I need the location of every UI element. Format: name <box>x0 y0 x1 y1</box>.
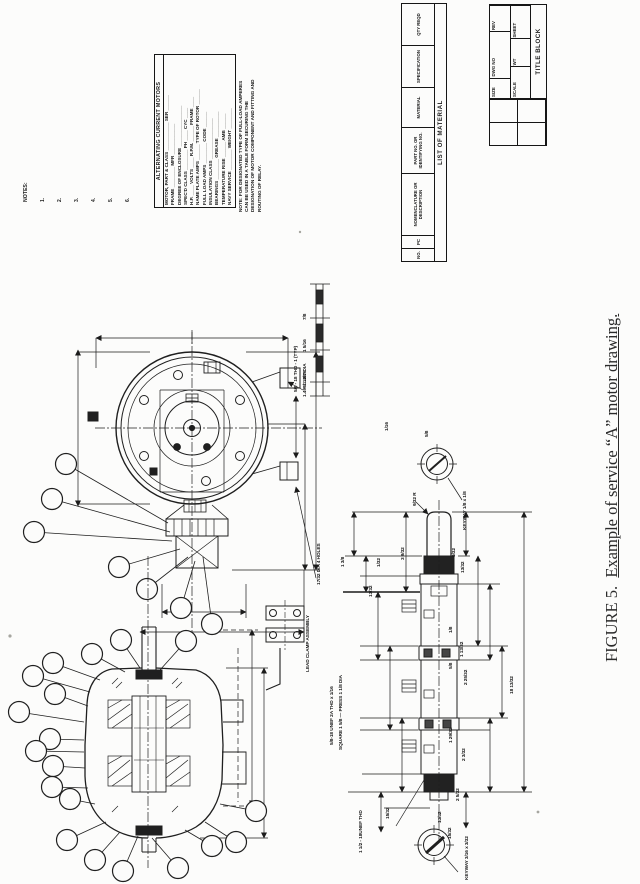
dimension-label: 15/32 <box>386 807 391 819</box>
dimension-label: 1/16 <box>385 422 390 431</box>
dimension-label: 15/32 <box>448 827 453 839</box>
side-note: NOTE: FOR DESIGNATED TYPE OF FULL-LOAD A… <box>238 52 264 212</box>
dimension-label: 13/32 <box>461 561 466 573</box>
scanned-drawing-page: FIGURE 5. Example of service “A” motor d… <box>0 0 640 884</box>
lom-column-header: SPECIFICATION <box>402 45 434 87</box>
dimension-label: 5/8 <box>449 663 454 669</box>
mini-strip-table <box>310 284 330 396</box>
note-item: 2. <box>52 168 69 202</box>
dimension-label: 2 3/32 <box>462 748 467 761</box>
dimension-label: 2 5/32 <box>456 788 461 801</box>
note-item: 6. <box>120 168 137 202</box>
lead-clamp-detail <box>266 600 304 690</box>
note-item: 5. <box>103 168 120 202</box>
title-block-cell: SIZE <box>490 78 511 98</box>
dimension-label: 2 25/32 <box>464 670 469 685</box>
note-item: 3. <box>69 168 86 202</box>
motor-data-table: ALTERNATING CURRENT MOTORS MOTOR, PART &… <box>154 54 236 208</box>
title-block: SIZE DWG NO REV SCALE WT SHEET TITLE BLO… <box>489 4 547 146</box>
scan-specks <box>8 231 539 814</box>
notes-title: NOTES: <box>18 168 35 202</box>
thread-left-label: 5/8-18 UNEF 2A THD x 1/16 <box>330 686 335 745</box>
dimension-label: 1/8 <box>449 627 454 633</box>
lom-column-header: NO. <box>402 248 434 261</box>
dimension-label: 1 3/8 <box>341 557 346 567</box>
title-block-cell: SCALE <box>511 66 532 98</box>
dimension-label: 1 13/32 <box>460 642 465 657</box>
dimension-label: 1 29/32 <box>449 728 454 743</box>
title-block-cell: REV <box>490 5 511 31</box>
title-block-cell: SHEET <box>511 5 532 38</box>
dimension-label: 1/32 <box>377 558 382 567</box>
title-block-title: TITLE BLOCK <box>531 5 546 98</box>
dimension-label: 9/32 R <box>413 492 418 506</box>
motor-table-row: NAVY SERVICE ________ WEIGHT ________ <box>227 55 233 207</box>
thread-bottom-label: 1 1/2 - 18UNEF THD <box>359 810 364 853</box>
lom-column-header: PC <box>402 235 434 248</box>
figure-caption-prefix: FIGURE 5. <box>602 586 621 662</box>
mounting-holes-label: 17/32 DIA 4 HOLES <box>317 543 322 585</box>
lom-column-header: PART NO. OR IDENTIFYING NO. <box>402 127 434 173</box>
list-of-material: NO. PC NOMENCLATURE OR DESCRIPTION PART … <box>401 3 447 262</box>
note-item: 1. <box>35 168 52 202</box>
lom-column-header: NOMENCLATURE OR DESCRIPTION <box>402 173 434 235</box>
shaft-dia-label: 1.499/1.497 DIA <box>303 364 308 397</box>
keyway-top-label: KEYWAY 1/8 x 1/8 <box>463 491 468 530</box>
figure-caption-text: Example of service “A” motor drawing. <box>602 314 621 578</box>
cross-section-balloons <box>9 630 267 882</box>
mini-table-value: 7/8 <box>303 314 308 320</box>
mini-table-value: 1 5/16 <box>303 339 308 352</box>
dimension-label: 13/32 <box>438 811 443 823</box>
title-block-grid <box>490 98 546 145</box>
note-item: 4. <box>86 168 103 202</box>
mini-table-label: 5/8 - 18 THD - 1 (TYP) <box>294 346 299 392</box>
end-view-dimensions <box>78 332 320 636</box>
dimension-label: 9/32 <box>452 548 457 557</box>
dimension-label: 13/32 <box>369 585 374 597</box>
lom-column-header: QTY REQD <box>402 4 434 45</box>
dimension-label: 5/8 <box>425 431 430 437</box>
dimension-label: 3 9/32 <box>401 547 406 560</box>
lead-clamp-label: LEAD CLAMP ASSEMBLY <box>306 615 311 672</box>
title-block-cell: DWG NO <box>490 31 511 78</box>
dimension-label: 18 13/32 <box>510 676 515 694</box>
figure-caption: FIGURE 5. Example of service “A” motor d… <box>602 250 630 662</box>
end-view <box>88 330 322 650</box>
end-view-balloons <box>24 454 223 635</box>
notes-list: NOTES: 1. 2. 3. 4. 5. 6. <box>18 168 140 202</box>
thread-left-label: SQUARE 1 5/8 — PRESS 1 1/8 DIA <box>339 675 344 750</box>
motor-table-title: ALTERNATING CURRENT MOTORS <box>155 55 164 207</box>
side-note-line: ROUTING OF RELAY. <box>257 52 263 212</box>
title-block-cell: WT <box>511 39 532 67</box>
lom-title: LIST OF MATERIAL <box>434 4 447 261</box>
keyway-bottom-label: KEYWAY 3/16 x 3/32 <box>465 836 470 880</box>
lom-column-header: MATERIAL <box>402 87 434 127</box>
